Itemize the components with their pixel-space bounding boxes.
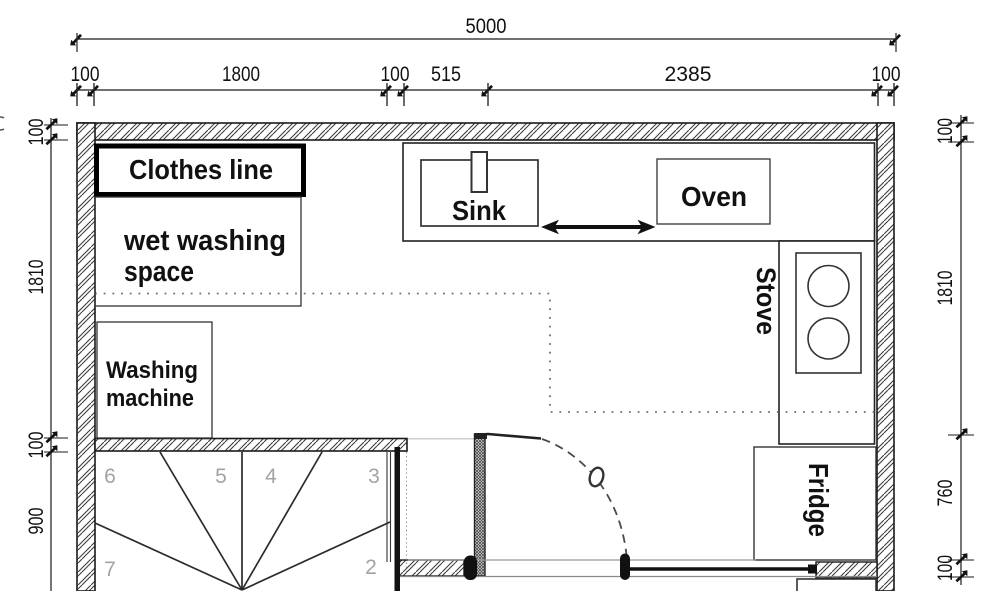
svg-text:100: 100 — [381, 63, 410, 86]
svg-text:2385: 2385 — [665, 63, 712, 86]
svg-text:760: 760 — [934, 480, 957, 507]
svg-text:4: 4 — [265, 465, 277, 488]
svg-text:100: 100 — [25, 432, 48, 459]
svg-text:Washing: Washing — [106, 357, 198, 384]
svg-text:Stove: Stove — [751, 267, 781, 335]
svg-text:100: 100 — [934, 118, 957, 144]
svg-text:5000: 5000 — [466, 15, 507, 38]
svg-text:machine: machine — [106, 385, 194, 412]
svg-text:100: 100 — [872, 63, 901, 86]
svg-text:6: 6 — [104, 465, 116, 488]
svg-text:1810: 1810 — [934, 271, 957, 306]
svg-text:1810: 1810 — [25, 260, 48, 295]
svg-text:2: 2 — [365, 556, 377, 579]
svg-text:100: 100 — [71, 63, 100, 86]
svg-text:100: 100 — [25, 119, 48, 146]
svg-text:space: space — [124, 256, 194, 288]
svg-text:3: 3 — [368, 465, 380, 488]
svg-text:wet washing: wet washing — [123, 225, 286, 257]
svg-text:Sink: Sink — [452, 195, 506, 226]
svg-text:Clothes line: Clothes line — [129, 154, 273, 185]
svg-text:515: 515 — [431, 63, 461, 86]
svg-text:1800: 1800 — [222, 63, 260, 86]
svg-text:100: 100 — [934, 555, 957, 581]
svg-text:7: 7 — [104, 558, 116, 581]
svg-text:Fridge: Fridge — [803, 463, 834, 537]
svg-text:900: 900 — [25, 508, 48, 535]
svg-text:Oven: Oven — [681, 181, 747, 212]
svg-text:5: 5 — [215, 465, 227, 488]
